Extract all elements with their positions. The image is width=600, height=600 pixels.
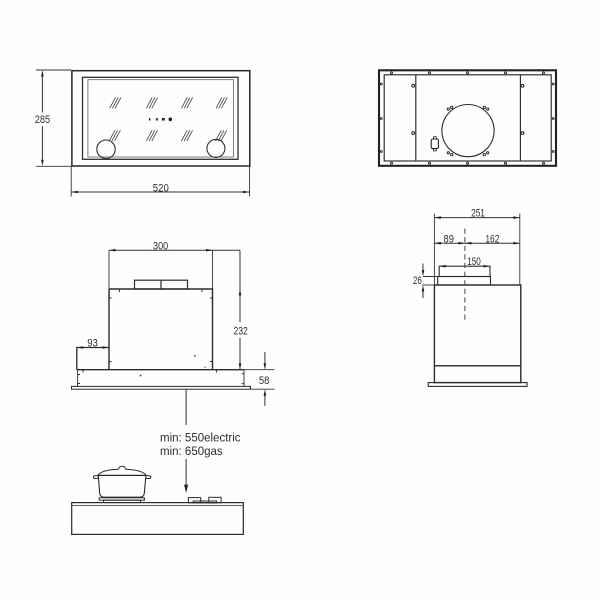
svg-text:26: 26: [413, 275, 422, 287]
svg-text:min: 650gas: min: 650gas: [160, 446, 223, 458]
svg-text:285: 285: [35, 114, 50, 126]
svg-text:251: 251: [471, 208, 485, 220]
svg-text:232: 232: [233, 325, 247, 337]
svg-text:93: 93: [87, 337, 98, 349]
svg-text:min: 550electric: min: 550electric: [160, 433, 241, 445]
svg-text:162: 162: [485, 233, 499, 245]
svg-text:150: 150: [467, 256, 481, 268]
svg-text:300: 300: [153, 240, 168, 252]
svg-text:520: 520: [153, 183, 169, 195]
svg-text:58: 58: [259, 375, 270, 387]
svg-text:89: 89: [444, 233, 454, 245]
